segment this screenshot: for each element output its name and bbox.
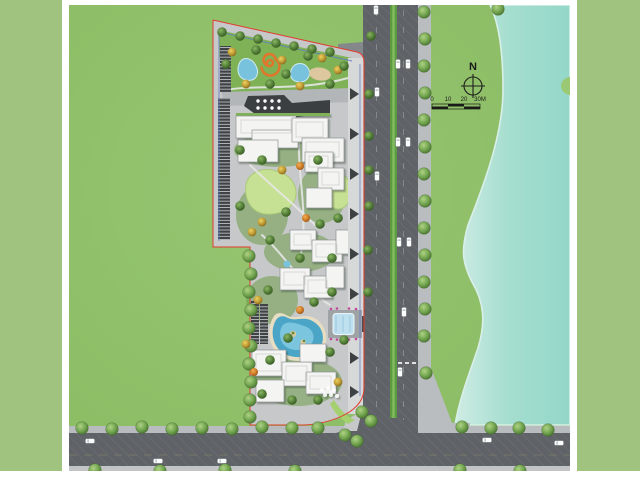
site-plan-canvas: N 0 10 20 30M <box>0 0 640 480</box>
retail-frontage <box>348 58 363 414</box>
site-plan-page: N 0 10 20 30M <box>0 0 640 480</box>
svg-text:30M: 30M <box>474 97 486 103</box>
svg-text:10: 10 <box>445 97 452 103</box>
svg-text:20: 20 <box>461 97 468 103</box>
park-pond-east <box>290 64 309 83</box>
small-pond <box>284 261 291 268</box>
stop-line-markings <box>398 362 416 364</box>
north-label: N <box>469 61 477 73</box>
site-plan-image: N 0 10 20 30M <box>69 3 581 478</box>
right-border-panel <box>577 0 640 471</box>
left-border-panel <box>0 0 62 471</box>
